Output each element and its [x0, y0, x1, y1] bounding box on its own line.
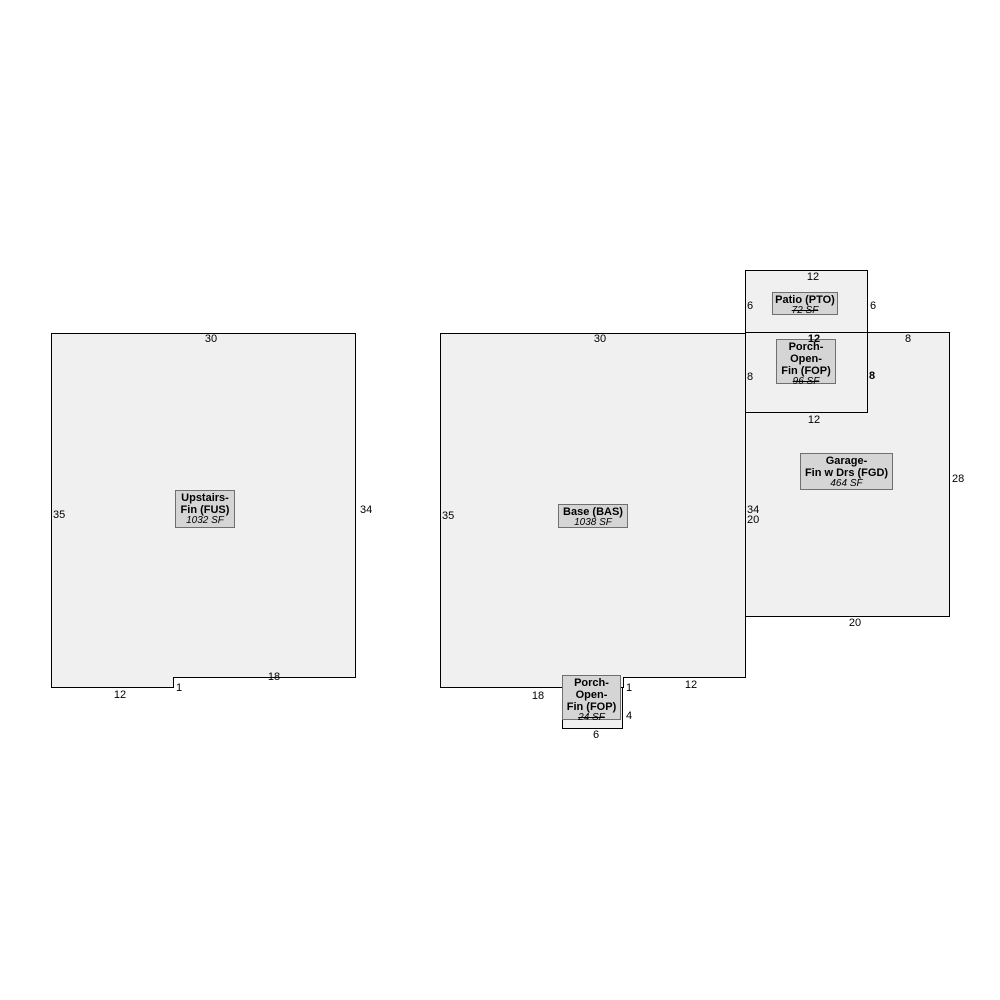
porch-fop-upper-label-line: Porch-: [777, 341, 835, 353]
dim-bas-step: 1: [626, 683, 632, 694]
dim-porch-fop-upper-top: 12: [808, 334, 820, 345]
patio-area-value: 72 SF: [773, 306, 837, 316]
garage-area-value: 464 SF: [801, 479, 892, 489]
dim-bas-bottom-left: 18: [532, 691, 544, 702]
dim-fus-top: 30: [205, 334, 217, 345]
dim-patio-right: 6: [870, 301, 876, 312]
porch-fop-lower-label-line: Porch-: [563, 677, 620, 689]
dim-garage-right: 28: [952, 474, 964, 485]
dim-fus-left: 35: [53, 510, 65, 521]
porch-fop-upper-area-value: 96 SF: [777, 377, 835, 387]
fus-outline-step-extension: [51, 677, 174, 688]
dim-garage-left: 20: [747, 515, 759, 526]
dim-porch-fop-upper-bottom: 12: [808, 415, 820, 426]
dim-fus-bottom-left: 12: [114, 690, 126, 701]
porch-fop-lower-area-value: 24 SF: [563, 713, 620, 723]
floorplan-sketch: Upstairs- Fin (FUS) 1032 SF Base (BAS) 1…: [0, 0, 1000, 1000]
bas-area-value: 1038 SF: [559, 518, 627, 528]
dim-patio-left: 6: [747, 301, 753, 312]
porch-fop-upper-label-line: Open-: [777, 353, 835, 365]
dim-porch-fop-upper-left: 8: [747, 372, 753, 383]
dim-porch-fop-lower-right: 4: [626, 711, 632, 722]
dim-porch-fop-lower-bottom: 6: [593, 730, 599, 741]
dim-porch-fop-upper-right: 8: [869, 371, 875, 382]
garage-label-box: Garage- Fin w Drs (FGD) 464 SF: [800, 453, 893, 490]
patio-label-box: Patio (PTO) 72 SF: [772, 292, 838, 315]
dim-garage-bottom: 20: [849, 618, 861, 629]
porch-fop-upper-label-box: Porch- Open- Fin (FOP) 96 SF: [776, 339, 836, 384]
dim-bas-bottom-right: 12: [685, 680, 697, 691]
bas-label-box: Base (BAS) 1038 SF: [558, 504, 628, 528]
dim-bas-top: 30: [594, 334, 606, 345]
porch-fop-lower-label-line: Open-: [563, 689, 620, 701]
dim-fus-bottom-right: 18: [268, 672, 280, 683]
dim-bas-left: 35: [442, 511, 454, 522]
fus-area-value: 1032 SF: [176, 516, 234, 526]
dim-garage-top-right: 8: [905, 334, 911, 345]
dim-fus-step: 1: [176, 683, 182, 694]
dim-patio-top: 12: [807, 272, 819, 283]
garage-label-line: Garage-: [801, 455, 892, 467]
dim-fus-right: 34: [360, 505, 372, 516]
porch-fop-lower-label-box: Porch- Open- Fin (FOP) 24 SF: [562, 675, 621, 720]
fus-label-box: Upstairs- Fin (FUS) 1032 SF: [175, 490, 235, 528]
fus-label-line: Upstairs-: [176, 492, 234, 504]
